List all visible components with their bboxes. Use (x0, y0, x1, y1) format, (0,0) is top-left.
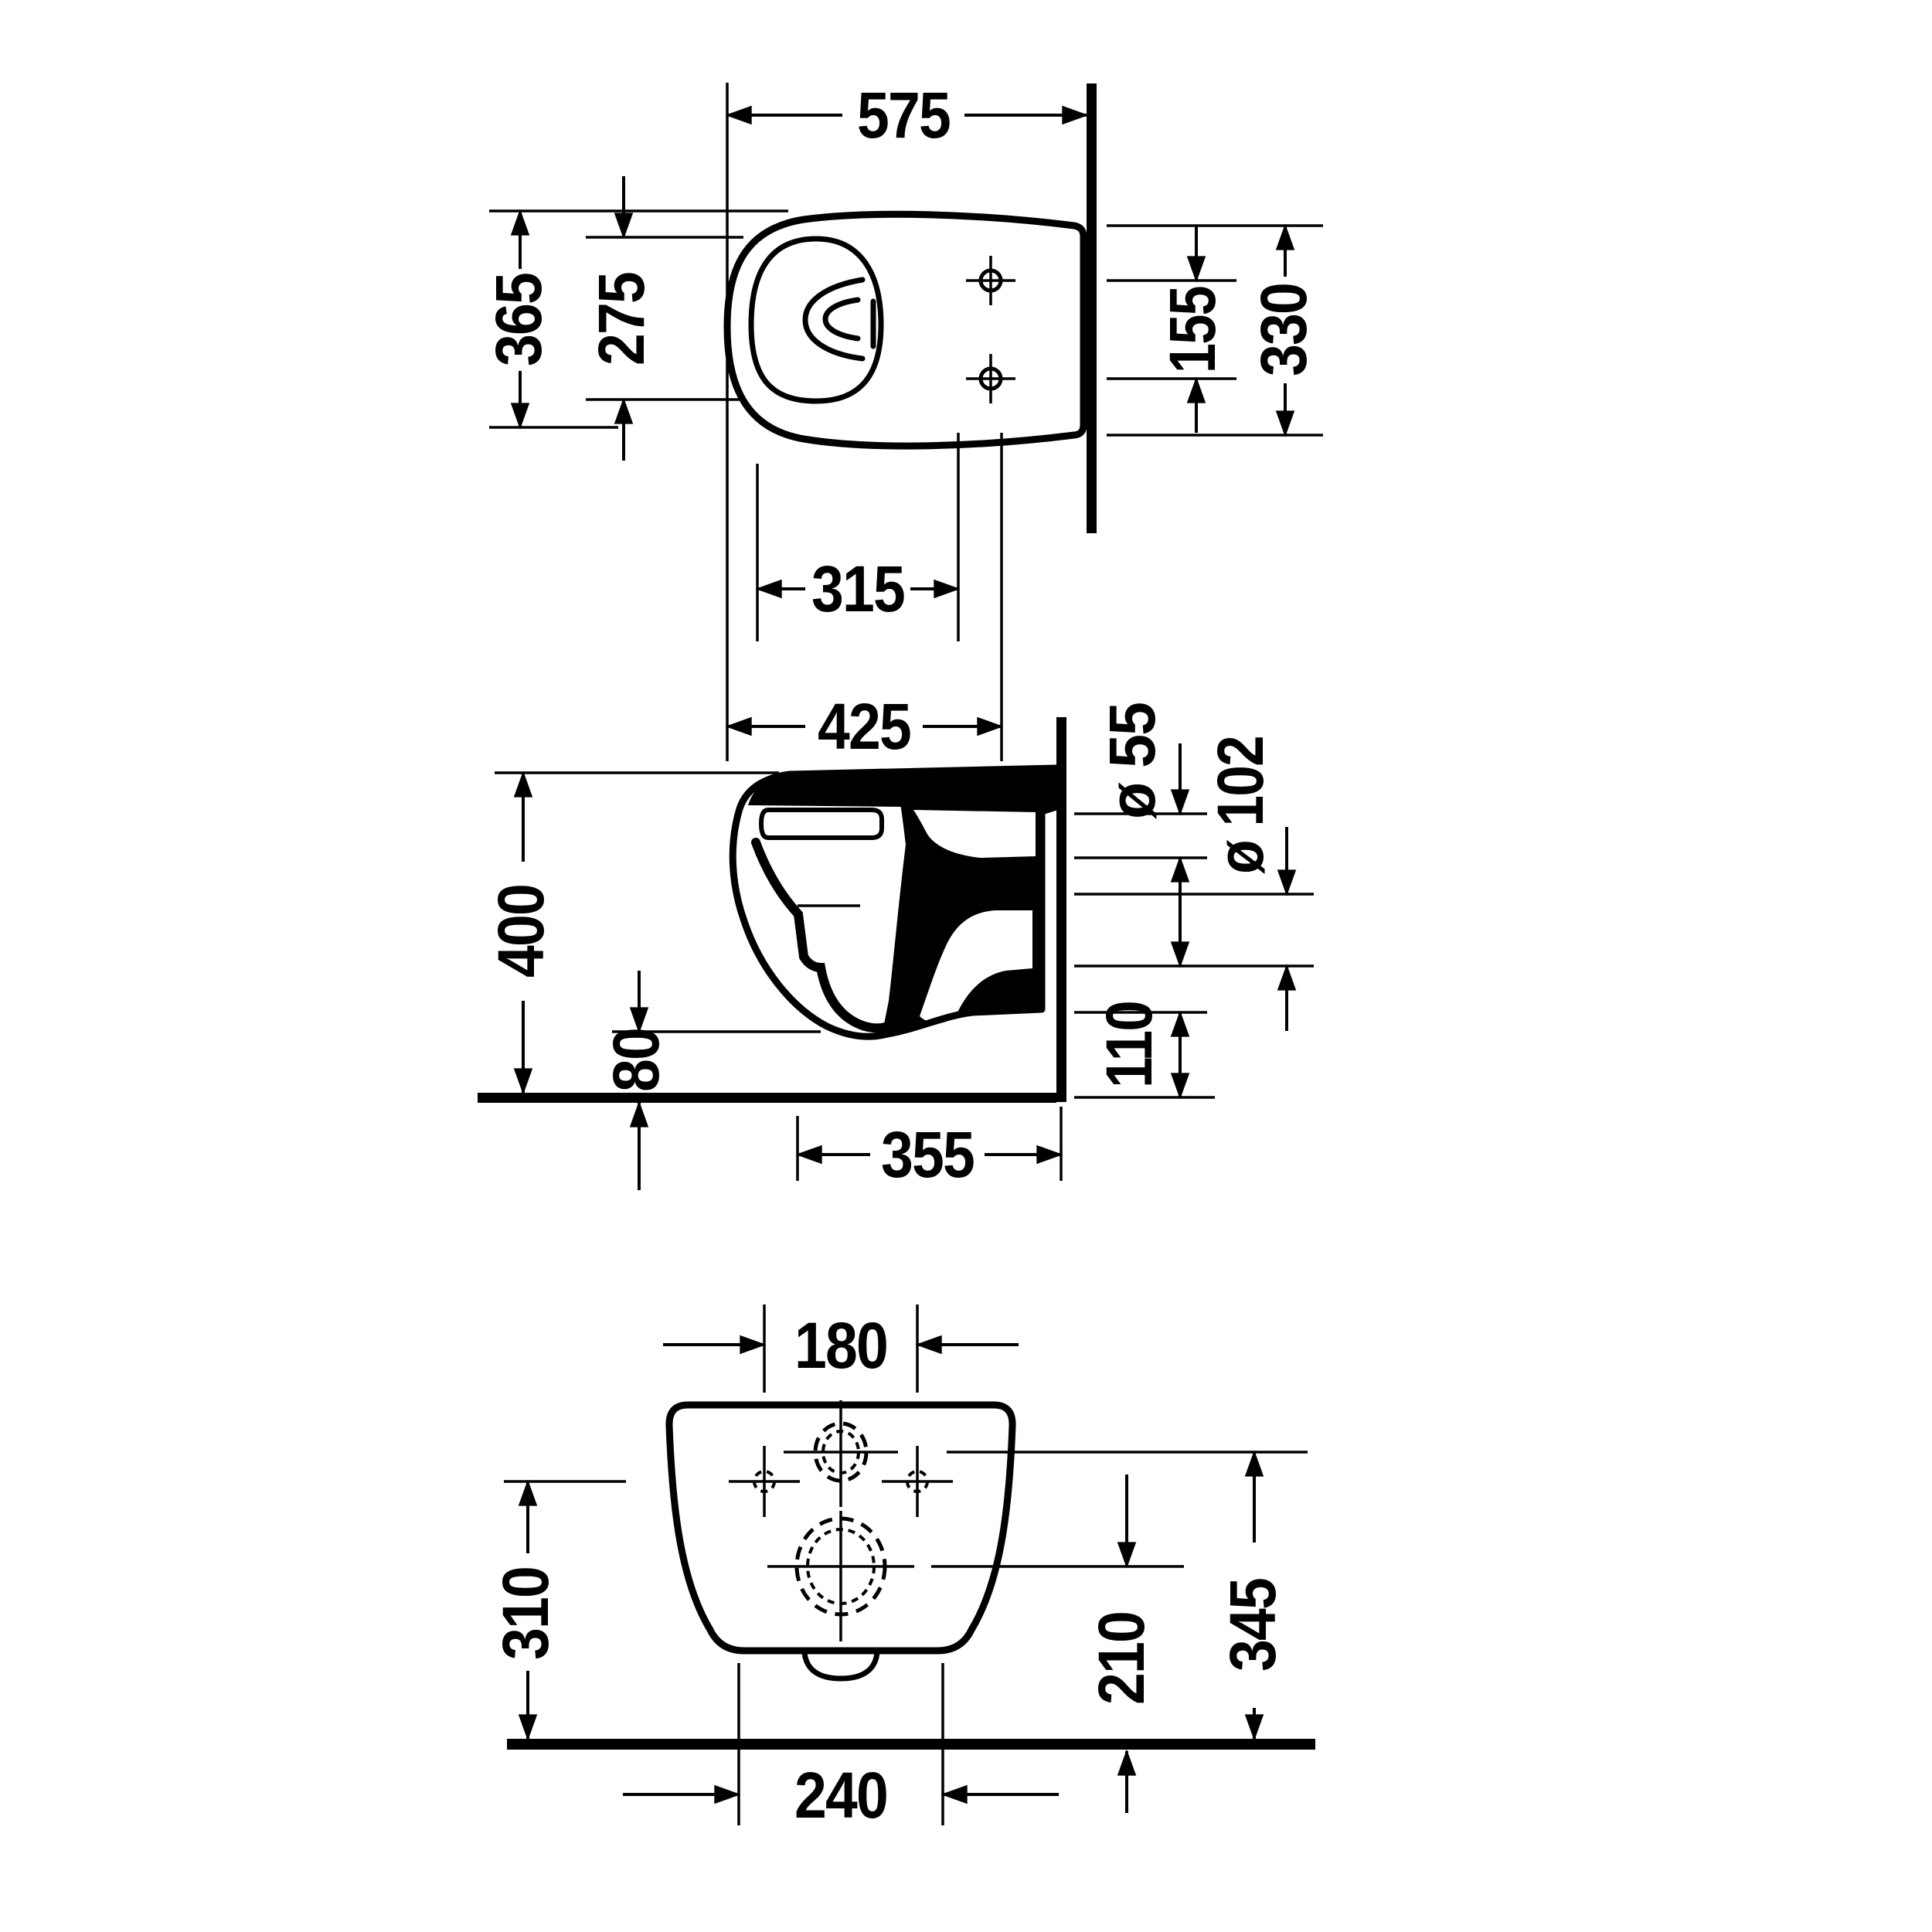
dim-label-275: 275 (585, 273, 658, 366)
dim-inner-width-275: 275 (585, 176, 743, 461)
toilet-dimensional-drawing: 575 365 275 155 (0, 0, 1932, 1932)
dim-label-400: 400 (485, 885, 557, 978)
dim-label-110: 110 (1093, 1002, 1165, 1088)
dim-label-310: 310 (489, 1567, 562, 1660)
rim-channel-slot (761, 810, 882, 838)
dim-label-425: 425 (818, 690, 910, 763)
back-section-fill (882, 768, 1056, 1036)
dim-label-345: 345 (1216, 1579, 1289, 1672)
dim-label-365: 365 (482, 274, 555, 366)
dim-opening-to-holes-315: 315 (757, 433, 958, 641)
top-view: 575 365 275 155 (482, 79, 1323, 763)
dim-inlet-diameter-55: ø 55 (1074, 703, 1207, 966)
dim-label-315: 315 (811, 553, 904, 625)
floor-line (478, 1093, 1056, 1103)
dim-label-210: 210 (1085, 1612, 1158, 1705)
dim-label-355: 355 (881, 1118, 974, 1191)
dim-label-80: 80 (600, 1029, 672, 1092)
dim-bowl-underside-80: 80 (600, 971, 821, 1190)
technical-drawing-canvas: 575 365 275 155 (0, 0, 1932, 1932)
dim-hole-height-310: 310 (489, 1481, 626, 1739)
dim-underside-depth-355: 355 (798, 1107, 1061, 1191)
dim-hole-spacing-180: 180 (663, 1304, 1019, 1393)
side-view: 400 80 ø 55 ø 102 110 (478, 703, 1314, 1191)
dim-label-180: 180 (794, 1309, 887, 1382)
rear-view: 180 310 345 210 240 (489, 1304, 1315, 1832)
dim-label-330: 330 (1247, 284, 1320, 376)
dim-bottom-edge-110: 110 (1074, 1002, 1207, 1097)
floor-line (507, 1739, 1315, 1750)
dim-label-240: 240 (794, 1759, 887, 1832)
dim-label-155: 155 (1156, 287, 1229, 373)
rear-bottom-tab (804, 1652, 877, 1679)
dim-label-inlet-diameter: ø 55 (1096, 703, 1168, 819)
dim-label-575: 575 (857, 79, 950, 151)
dim-label-outlet-diameter: ø 102 (1204, 736, 1277, 874)
wall-section-line (1087, 83, 1097, 533)
dim-hole-spacing-155: 155 (1107, 226, 1236, 433)
